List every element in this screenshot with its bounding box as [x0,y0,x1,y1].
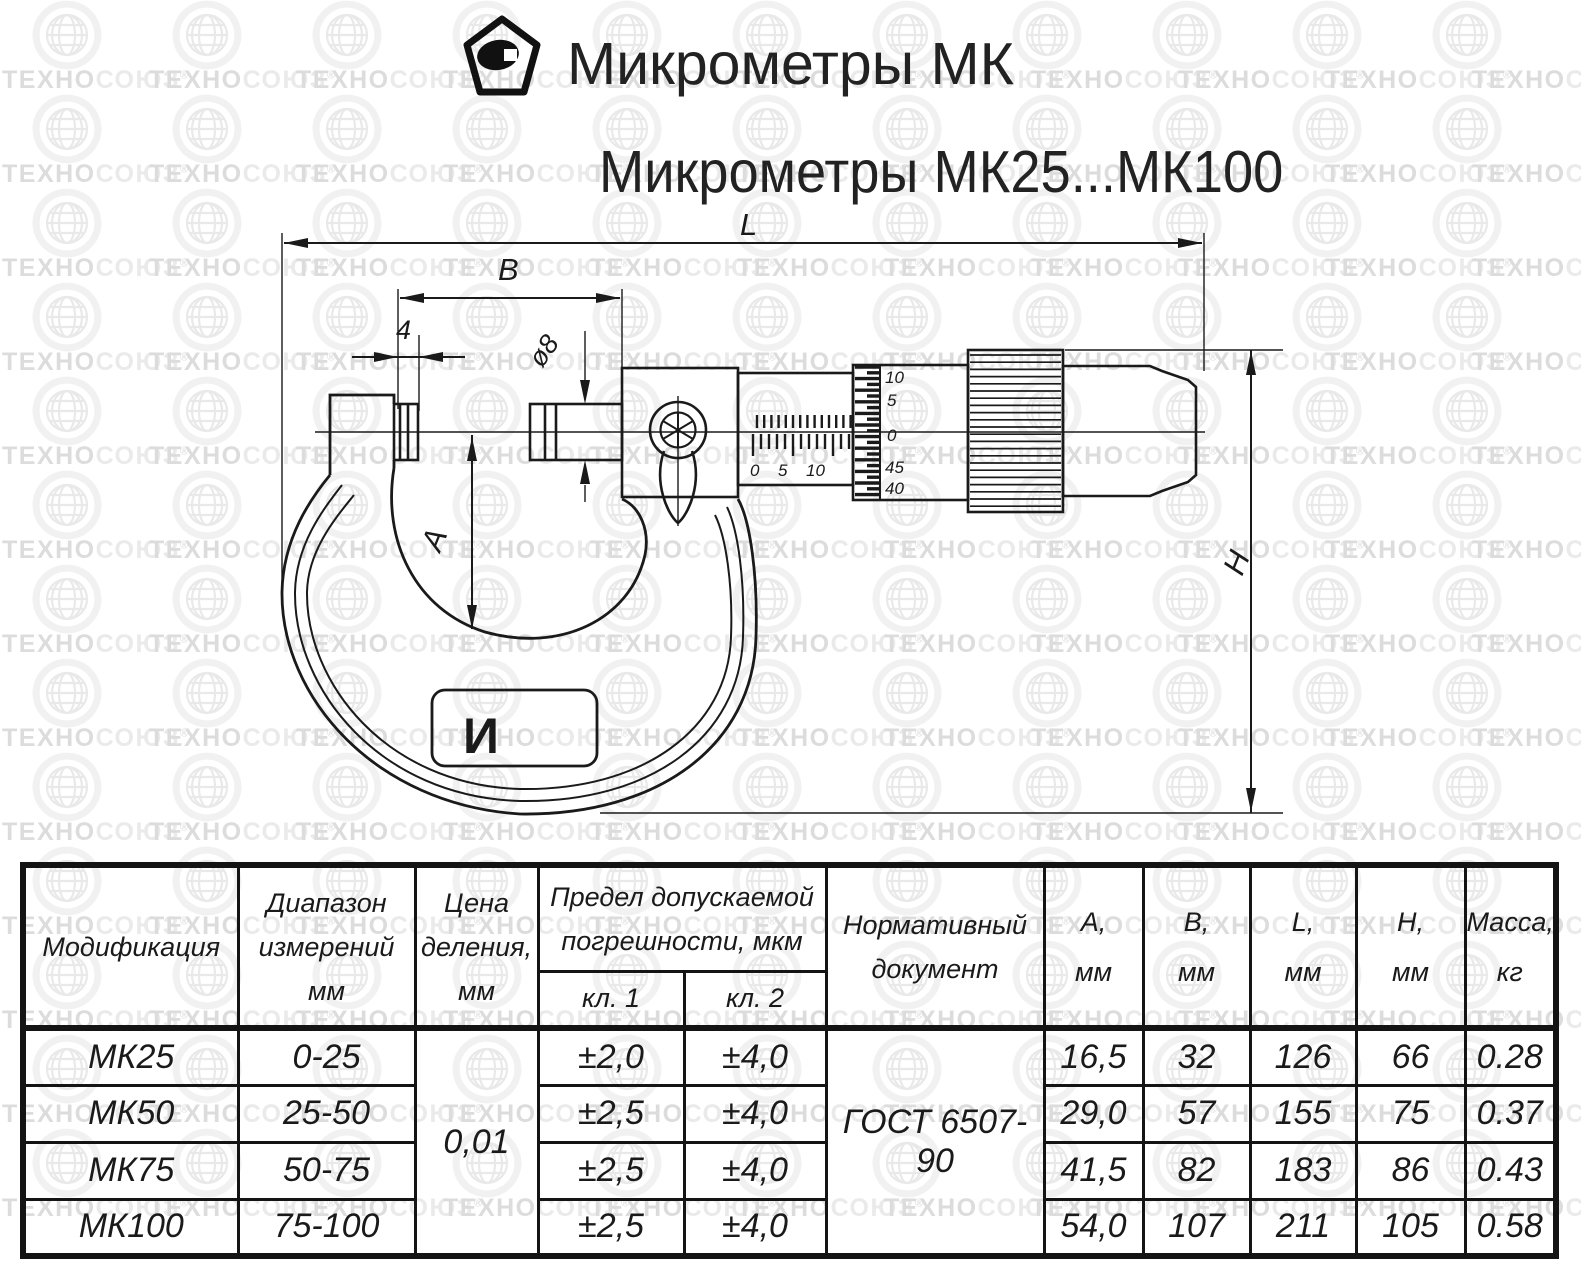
cell-model: МК75 [23,1142,238,1199]
cell-range: 75-100 [238,1199,415,1256]
cell-class1: ±2,0 [538,1028,684,1085]
svg-text:5: 5 [887,391,897,410]
frame-nameplate [432,690,597,766]
thimble-scale-numbers: 10 5 0 45 40 [885,368,904,498]
col-header-a: А,мм [1044,865,1143,1028]
cell-a: 41,5 [1044,1142,1143,1199]
cell-b: 57 [1143,1085,1250,1142]
cell-l: 126 [1250,1028,1356,1085]
cell-h: 86 [1356,1142,1465,1199]
cell-a: 16,5 [1044,1028,1143,1085]
cell-l: 211 [1250,1199,1356,1256]
cell-model: МК100 [23,1199,238,1256]
cell-b: 107 [1143,1199,1250,1256]
cell-division-value: 0,01 [415,1028,538,1256]
dim-label-A: A [413,523,454,557]
col-header-class2: кл. 2 [684,971,826,1028]
col-header-b: В,мм [1143,865,1250,1028]
col-header-error: Предел допускаемой погрешности, мкм [538,865,826,971]
watermark-globe-icon [165,87,249,171]
cell-class1: ±2,5 [538,1199,684,1256]
svg-text:45: 45 [885,458,904,477]
spec-table: Модификация Диапазон измерений мм Цена д… [20,862,1559,1259]
end-cap [1063,366,1196,496]
dimension-arrowheads [284,238,1256,812]
micrometer-drawing: И 0 5 [0,185,1581,845]
cell-class2: ±4,0 [684,1028,826,1085]
dim-label-dia8: ø8 [522,329,565,372]
cell-a: 54,0 [1044,1199,1143,1256]
cell-l: 183 [1250,1142,1356,1199]
dim-label-L: L [740,207,757,242]
col-header-l: L,мм [1250,865,1356,1028]
col-header-class1: кл. 1 [538,971,684,1028]
catalog-page: ТЕХНОСОЮЗ®ТЕХНОСОЮЗ®ТЕХНОСОЮЗ®ТЕХНОСОЮЗ®… [0,0,1581,1270]
thimble-graduations [855,367,880,495]
watermark-globe-icon [1425,87,1509,171]
svg-text:0: 0 [750,461,760,480]
watermark-globe-icon [305,87,389,171]
col-header-document: Нормативный документ [826,865,1044,1028]
col-header-division: Цена деления, мм [415,865,538,1028]
svg-text:10: 10 [885,368,904,387]
ratchet-knurling [970,355,1061,506]
cell-mass: 0.58 [1465,1199,1556,1256]
cell-b: 82 [1143,1142,1250,1199]
sleeve-lower-ticks [753,434,849,456]
cell-mass: 0.43 [1465,1142,1556,1199]
cell-h: 66 [1356,1028,1465,1085]
cell-document: ГОСТ 6507-90 [826,1028,1044,1256]
cell-class2: ±4,0 [684,1085,826,1142]
cell-h: 75 [1356,1085,1465,1142]
cell-mass: 0.37 [1465,1085,1556,1142]
sleeve-scale-numbers: 0 5 10 [750,461,825,480]
cell-b: 32 [1143,1028,1250,1085]
ratchet-knob [968,350,1063,512]
dim-label-B: B [498,252,519,287]
cell-l: 155 [1250,1085,1356,1142]
svg-text:10: 10 [806,461,825,480]
frame-maker-mark: И [463,708,499,764]
cell-class2: ±4,0 [684,1142,826,1199]
col-header-mass: Масса,кг [1465,865,1556,1028]
dimension-labels: L B 4 ø8 A H [396,207,1257,580]
cell-mass: 0.28 [1465,1028,1556,1085]
cell-range: 0-25 [238,1028,415,1085]
svg-text:40: 40 [885,479,904,498]
col-header-range: Диапазон измерений мм [238,865,415,1028]
cell-class1: ±2,5 [538,1142,684,1199]
col-header-modification: Модификация [23,865,238,1028]
cell-range: 50-75 [238,1142,415,1199]
watermark-globe-icon [25,87,109,171]
svg-text:0: 0 [887,426,897,445]
cell-a: 29,0 [1044,1085,1143,1142]
cell-model: МК25 [23,1028,238,1085]
svg-text:5: 5 [778,461,788,480]
watermark-globe-icon [1285,87,1369,171]
cell-h: 105 [1356,1199,1465,1256]
cell-range: 25-50 [238,1085,415,1142]
col-header-h: Н,мм [1356,865,1465,1028]
sleeve-upper-ticks [757,415,851,428]
cell-model: МК50 [23,1085,238,1142]
cell-class2: ±4,0 [684,1199,826,1256]
page-title: Микрометры МК [0,30,1581,98]
dim-label-4: 4 [396,315,411,345]
cell-class1: ±2,5 [538,1085,684,1142]
